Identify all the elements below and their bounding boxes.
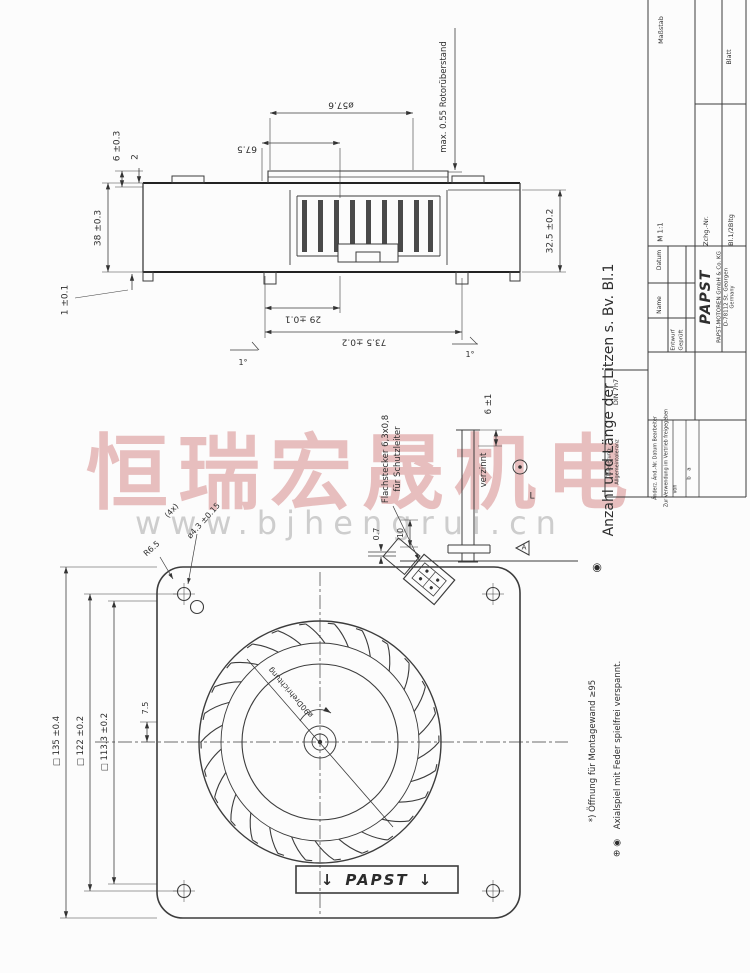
footnote-montagewand: *) Öffnung für Montagewand ≥95 xyxy=(589,680,598,822)
tolerance-allgemein-label: Allgemeintoleranz xyxy=(616,439,621,484)
tolerance-din-label: DIN 7h7 xyxy=(613,379,620,405)
titleblock-release-note: Zur Verwendung im Vertrieb freigegeben xyxy=(666,409,671,507)
titleblock-revision-header: Änderz. Änd.-Nr. Datum Bearbeiter xyxy=(655,416,660,500)
footnote-axialspiel: Axialspiel mit Feder spielfrei verspannt… xyxy=(614,661,623,829)
titleblock-row-b: b xyxy=(687,476,693,480)
dim-label-sq1133: □ 113.3 ±0.2 xyxy=(101,713,110,771)
titleblock-masstab-value: M 1:1 xyxy=(658,222,665,242)
papst-arrow-right: ↓ xyxy=(419,871,434,889)
titleblock-company-line1: PAPST-MOTOREN GmbH & Co. KG xyxy=(717,251,723,343)
titleblock-blatt-value: Bl.1/2Bltg xyxy=(728,214,735,246)
dim-label-sq122: □ 122 ±0.2 xyxy=(77,716,86,766)
titleblock-masstab-label: Maßstab xyxy=(658,16,665,44)
titleblock-datum-header: Datum xyxy=(657,250,663,270)
label-lead-length-L: L xyxy=(529,493,534,502)
drawing-sheet: 恒瑞宏晟机电 www.bjhengrui.cn xyxy=(0,0,750,973)
papst-logo-text: PAPST xyxy=(345,871,408,889)
angle-label-left: 1° xyxy=(238,359,247,367)
litzen-reference-symbol: ◉ xyxy=(592,562,602,573)
angle-label-right: 1° xyxy=(465,351,474,359)
titleblock-row-a: a xyxy=(687,467,693,470)
datum-flag-A: A xyxy=(522,545,527,552)
dim-label-10: 10 xyxy=(397,528,405,538)
titleblock-papst-logo: PAPST xyxy=(699,270,713,325)
papst-nameplate: ↓ PAPST ↓ xyxy=(296,866,458,893)
side-view xyxy=(75,28,566,350)
dim-label-75: 7.5 xyxy=(142,702,150,715)
dim-label-2: 2 xyxy=(132,154,141,160)
dim-label-6: 6 ±0.3 xyxy=(114,131,123,161)
tolerance-tolerierung-label: Tolerierung: xyxy=(608,447,613,477)
titleblock-name-header: Name xyxy=(657,296,663,314)
titleblock-geprueft-label: Geprüft xyxy=(679,330,685,351)
note-flachstecker-line2: für Schutzleiter xyxy=(394,426,403,491)
dim-label-07: 0.7 xyxy=(373,528,381,541)
titleblock-entwurf-label: Entwurf xyxy=(671,329,677,350)
titleblock-blatt-label: Blatt xyxy=(726,49,733,64)
dim-label-325: 32.5 ±0.2 xyxy=(547,209,556,254)
dim-label-6pm1: 6 ±1 xyxy=(485,394,494,415)
note-flachstecker-line1: Flachstecker 6,3x0,8 xyxy=(382,415,391,503)
note-rotor-overhang: max. 0.55 Rotorüberstand xyxy=(440,41,449,153)
dim-label-735: 73.5 ±0.2 xyxy=(342,337,387,346)
dim-label-675: 67.5 xyxy=(237,144,257,153)
papst-arrow-left: ↓ xyxy=(321,871,336,889)
dim-label-1: 1 ±0.1 xyxy=(62,285,71,315)
dim-label-29: 29 ±0.1 xyxy=(285,314,321,323)
titleblock-von-label: von xyxy=(675,485,680,494)
titleblock-company-line3: Germany xyxy=(731,286,736,309)
titleblock-zchg-label: Zchg.-Nr. xyxy=(703,216,710,246)
title-block-grid xyxy=(605,0,746,497)
dim-label-38: 38 ±0.3 xyxy=(95,210,104,246)
footnote-reference-symbols: ⊕ ◉ xyxy=(614,839,623,857)
dim-label-sq135: □ 135 ±0.4 xyxy=(53,716,62,766)
front-view xyxy=(60,534,568,918)
dim-label-diameter-576: ø57.6 xyxy=(328,100,354,109)
note-verzinnt: verzinnt xyxy=(480,453,489,488)
